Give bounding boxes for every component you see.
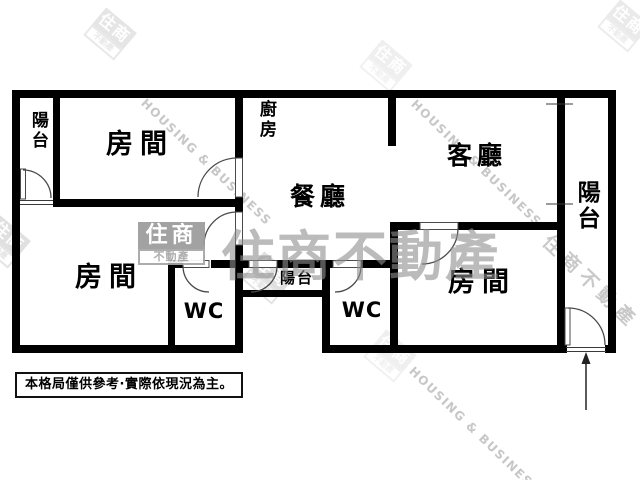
entrance-arrow-head bbox=[582, 352, 591, 364]
wall-left bbox=[12, 98, 20, 353]
label-wc1: WC bbox=[184, 300, 225, 322]
door-arc-wc1 bbox=[183, 266, 209, 292]
wall-wc1-left bbox=[168, 260, 175, 353]
label-balcony-left: 陽台 bbox=[28, 111, 46, 151]
wall-kitchen-stub bbox=[388, 98, 396, 146]
brand-logo-text: 住商 bbox=[138, 222, 205, 249]
label-dining: 餐廳 bbox=[290, 184, 350, 210]
door-arc-balcony-left bbox=[23, 170, 51, 198]
door-leaf-entrance bbox=[565, 308, 570, 345]
threshold-balcony-left bbox=[20, 201, 53, 205]
wall-center-vertical bbox=[235, 197, 243, 212]
watermark-center-logo: 住商 不動產 bbox=[138, 222, 205, 265]
label-kitchen: 廚房 bbox=[256, 100, 274, 140]
watermark-brand-cjk-large: 住商不動產 bbox=[221, 230, 501, 284]
walls-group bbox=[12, 90, 616, 353]
wall-top bbox=[12, 90, 616, 98]
wall-center-vertical bbox=[235, 98, 243, 158]
wall-right bbox=[608, 98, 616, 353]
door-arc-room1 bbox=[198, 158, 237, 197]
brand-logo-subtext: 不動產 bbox=[138, 249, 205, 265]
label-wc2: WC bbox=[342, 299, 383, 321]
entrance-arrow bbox=[582, 352, 591, 410]
label-room-bottom-left: 房間 bbox=[75, 264, 143, 292]
wall-bottom-left bbox=[12, 345, 243, 353]
door-arc-entrance bbox=[568, 308, 605, 345]
label-living: 客廳 bbox=[447, 143, 507, 169]
floorplan-page: 住商 不動產 住商 不動產 住商 不動產 住商 不動產 住商 不動產 住商 不動… bbox=[0, 0, 640, 480]
wall-bottom-right bbox=[322, 345, 567, 353]
label-room-top-left: 房間 bbox=[106, 131, 174, 159]
wall-mid-horizontal bbox=[53, 199, 243, 207]
wall-bottom-corner bbox=[605, 345, 616, 353]
wall-balcony-left-partition bbox=[53, 98, 60, 199]
label-balcony-right: 陽台 bbox=[574, 180, 598, 232]
disclaimer-box: 本格局僅供參考·實際依現況為主。 bbox=[15, 372, 243, 398]
door-leaf-room1 bbox=[236, 158, 243, 197]
door-leaf-balcony-left bbox=[21, 169, 26, 199]
